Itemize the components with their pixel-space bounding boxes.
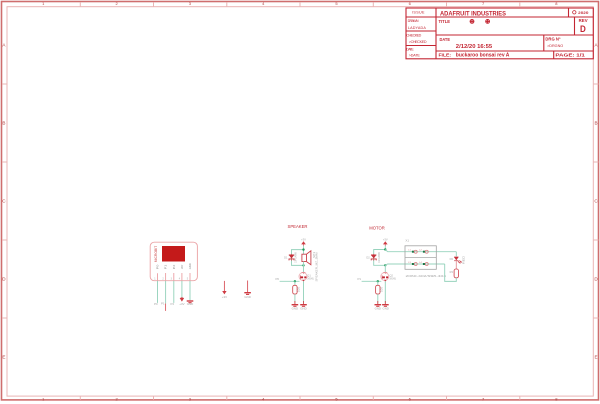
svg-text:DRG N°: DRG N° (545, 37, 560, 42)
svg-text:>DATE: >DATE (409, 54, 421, 58)
svg-text:P0: P0 (275, 277, 279, 281)
svg-text:FILE:: FILE: (439, 53, 452, 58)
svg-text:GND: GND (375, 306, 381, 310)
svg-text:LADYADA: LADYADA (408, 26, 426, 30)
svg-text:+3V: +3V (301, 237, 306, 241)
svg-text:GND: GND (300, 306, 306, 310)
svg-text:100: 100 (380, 286, 383, 292)
svg-text:P0: P0 (154, 302, 158, 306)
svg-text:MOTOR: MOTOR (369, 226, 385, 231)
svg-text:ADAFRUIT INDUSTRIES: ADAFRUIT INDUSTRIES (440, 11, 506, 18)
svg-text:PAGE: 1/1: PAGE: 1/1 (555, 52, 585, 57)
svg-text:+3V: +3V (222, 295, 227, 299)
svg-text:P2: P2 (172, 264, 176, 269)
svg-text:X1: X1 (405, 239, 409, 243)
svg-text:DRAWN: DRAWN (408, 19, 419, 23)
svg-text:DATE: DATE (406, 47, 414, 51)
svg-text:D: D (580, 23, 586, 34)
svg-text:>DRGNO: >DRGNO (547, 44, 563, 48)
svg-text:2020: 2020 (578, 11, 588, 15)
svg-text:DMG3406L: DMG3406L (307, 278, 314, 281)
svg-text:1N4148W: 1N4148W (295, 252, 298, 263)
svg-text:RED: RED (462, 256, 465, 264)
svg-text:+3V: +3V (179, 302, 184, 306)
svg-text:buckaroo bonsai rev A: buckaroo bonsai rev A (456, 53, 510, 59)
svg-text:CHECKED: CHECKED (406, 34, 421, 38)
svg-text:DATE: DATE (440, 37, 451, 42)
svg-text:TITLE: TITLE (439, 19, 451, 24)
svg-text:+3V: +3V (383, 237, 388, 241)
svg-text:2/12/20 16:55: 2/12/20 16:55 (456, 44, 492, 50)
svg-text:3V: 3V (180, 264, 184, 269)
svg-text:P1: P1 (164, 264, 168, 269)
svg-text:D3: D3 (450, 257, 454, 261)
svg-text:SPEAKER: SPEAKER (288, 224, 308, 229)
svg-text:>CHECKED: >CHECKED (409, 40, 427, 44)
svg-text:MICROBIT: MICROBIT (154, 246, 158, 263)
svg-text:B: B (595, 121, 598, 126)
svg-text:B: B (2, 121, 5, 126)
svg-text:P2: P2 (171, 302, 175, 306)
svg-text:E: E (595, 355, 598, 360)
svg-text:GND: GND (292, 306, 298, 310)
svg-text:100: 100 (297, 286, 300, 292)
svg-text:P1: P1 (161, 301, 165, 305)
svg-text:GND: GND (187, 302, 193, 306)
svg-text:GND: GND (188, 263, 192, 269)
svg-text:D2: D2 (366, 256, 370, 260)
svg-text:R3: R3 (450, 270, 454, 274)
svg-text:GND: GND (244, 295, 250, 299)
svg-text:DMG3406L: DMG3406L (390, 278, 397, 281)
svg-text:E: E (2, 355, 5, 360)
svg-text:1N4148W: 1N4148W (378, 252, 381, 263)
svg-text:P1: P1 (357, 277, 361, 281)
svg-text:GND: GND (382, 306, 388, 310)
svg-text:D1: D1 (284, 256, 288, 260)
svg-text:ISSUE: ISSUE (412, 11, 425, 15)
svg-text:SPEAKER_MZ_5MM: SPEAKER_MZ_5MM (315, 253, 319, 282)
svg-text:2060-402/998-404: 2060-402/998-404 (406, 274, 447, 278)
svg-text:P0: P0 (156, 264, 160, 269)
